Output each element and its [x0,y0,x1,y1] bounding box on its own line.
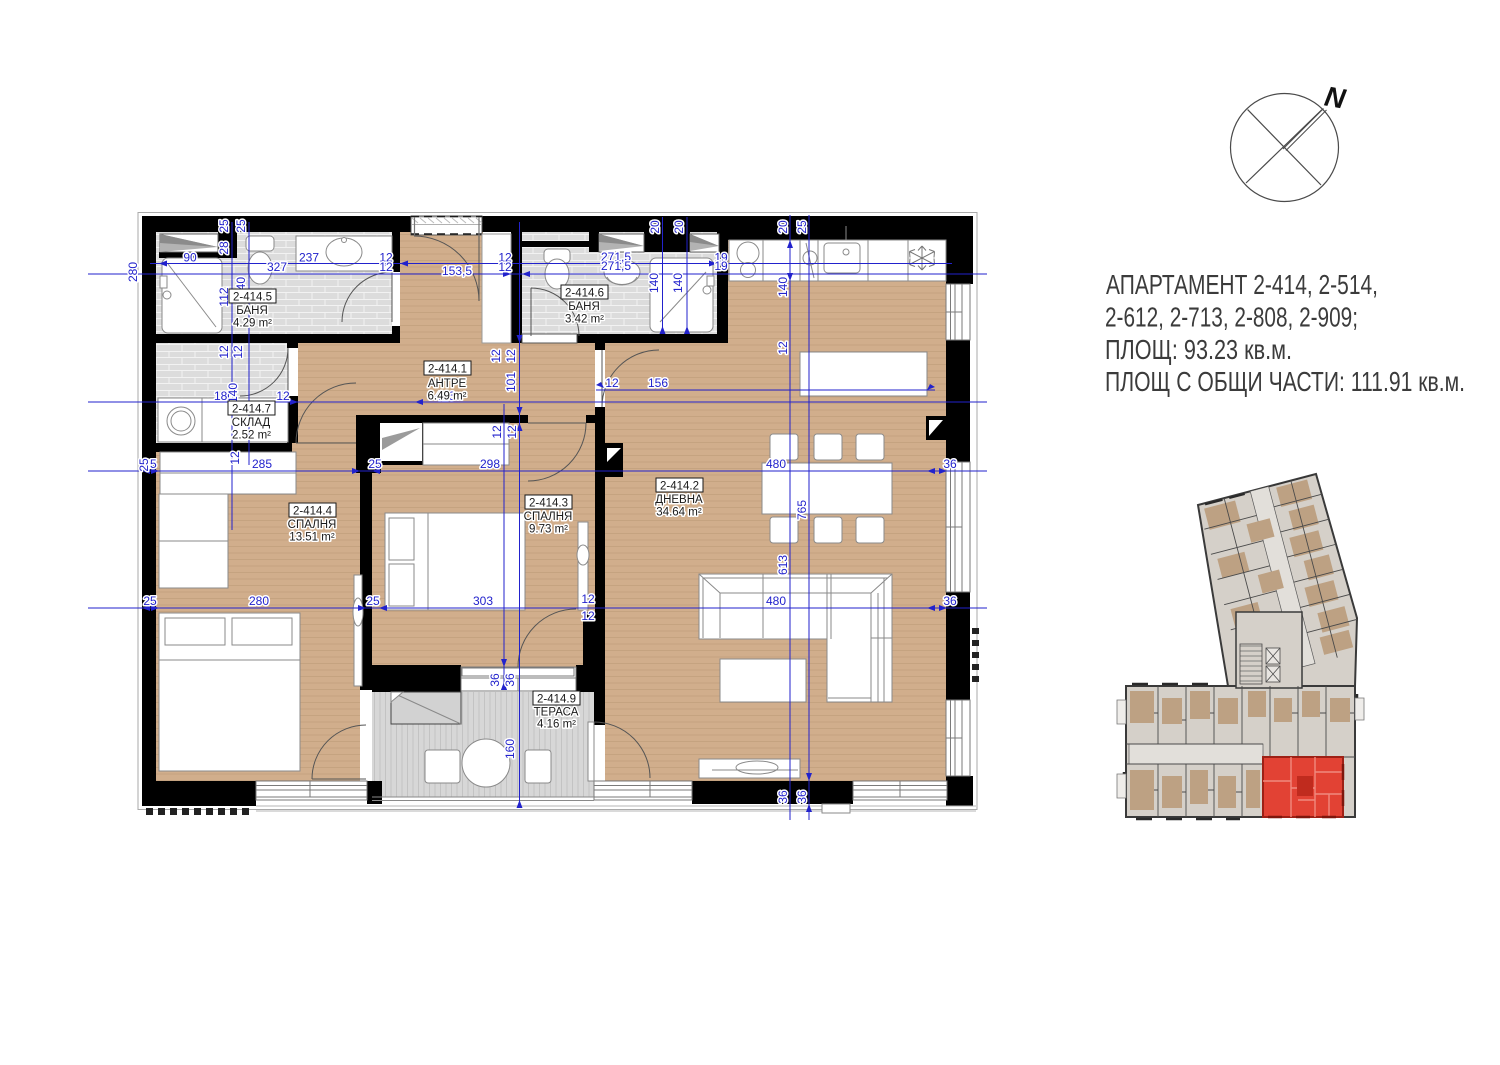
svg-text:ПЛОЩ С ОБЩИ ЧАСТИ: 111.91 кв.м: ПЛОЩ С ОБЩИ ЧАСТИ: 111.91 кв.м. [1105,366,1465,397]
svg-text:327: 327 [267,260,287,274]
svg-text:36: 36 [488,673,502,687]
svg-text:12: 12 [217,345,231,359]
svg-text:2-414.4: 2-414.4 [293,506,333,518]
svg-text:2-414.9: 2-414.9 [537,694,576,706]
svg-text:СПАЛНЯ: СПАЛНЯ [288,519,337,531]
svg-text:12: 12 [228,451,242,465]
svg-text:6.49 m²: 6.49 m² [428,391,467,403]
svg-text:480: 480 [766,457,786,471]
svg-text:140: 140 [226,383,240,403]
svg-text:156: 156 [648,376,668,390]
svg-text:2-414.3: 2-414.3 [529,498,568,510]
svg-text:280: 280 [126,262,140,282]
svg-text:12: 12 [498,260,512,274]
svg-text:БАНЯ: БАНЯ [236,305,268,317]
svg-text:2-612, 2-713, 2-808, 2-909;: 2-612, 2-713, 2-808, 2-909; [1105,302,1358,333]
svg-text:12: 12 [776,341,790,355]
svg-text:СКЛАД: СКЛАД [232,417,271,429]
svg-text:90: 90 [183,251,197,265]
svg-text:280: 280 [249,594,269,608]
svg-text:140: 140 [776,277,790,297]
svg-text:25: 25 [217,219,231,233]
svg-text:ТЕРАСА: ТЕРАСА [534,707,579,719]
svg-text:2-414.1: 2-414.1 [428,364,467,376]
svg-text:12: 12 [504,349,518,363]
svg-text:20: 20 [648,220,662,234]
svg-text:12: 12 [379,260,393,274]
svg-text:12: 12 [581,592,595,606]
svg-text:2-414.6: 2-414.6 [565,288,604,300]
svg-text:4.16 m²: 4.16 m² [537,719,576,731]
svg-text:2-414.5: 2-414.5 [233,292,272,304]
svg-text:613: 613 [776,555,790,575]
svg-text:12: 12 [490,425,504,439]
svg-text:СПАЛНЯ: СПАЛНЯ [524,511,573,523]
svg-text:ПЛОЩ: 93.23 кв.м.: ПЛОЩ: 93.23 кв.м. [1105,334,1292,365]
svg-text:140: 140 [671,273,685,293]
svg-text:36: 36 [776,790,790,804]
svg-text:271,5: 271,5 [601,259,631,273]
svg-text:36: 36 [943,457,957,471]
svg-text:25: 25 [234,219,248,233]
svg-text:3.42 m²: 3.42 m² [565,314,604,326]
svg-text:12: 12 [605,376,619,390]
svg-text:28: 28 [217,241,231,255]
svg-text:285: 285 [252,457,272,471]
svg-text:12: 12 [581,609,595,623]
svg-text:36: 36 [503,673,517,687]
svg-text:153,5: 153,5 [442,264,472,278]
svg-text:36: 36 [795,790,809,804]
svg-text:25: 25 [366,594,380,608]
svg-text:19: 19 [714,259,728,273]
svg-text:ДНЕВНА: ДНЕВНА [655,494,703,506]
svg-text:25: 25 [368,457,382,471]
svg-text:101: 101 [504,372,518,392]
svg-text:237: 237 [299,251,319,265]
svg-text:12: 12 [276,389,290,403]
svg-text:20: 20 [776,220,790,234]
svg-text:298: 298 [480,457,500,471]
svg-text:140: 140 [647,273,661,293]
svg-text:2-414.2: 2-414.2 [660,481,699,493]
svg-text:765: 765 [795,500,809,520]
svg-text:АПАРТАМЕНТ 2-414, 2-514,: АПАРТАМЕНТ 2-414, 2-514, [1106,269,1378,300]
svg-text:160: 160 [503,739,517,759]
svg-text:20: 20 [672,220,686,234]
svg-text:12: 12 [489,349,503,363]
svg-text:12: 12 [231,345,245,359]
svg-text:12: 12 [505,425,519,439]
svg-text:303: 303 [473,594,493,608]
svg-text:25: 25 [143,594,157,608]
svg-text:АНТРЕ: АНТРЕ [428,378,467,390]
svg-text:25: 25 [795,220,809,234]
svg-text:13.51 m²: 13.51 m² [289,532,335,544]
svg-text:4.29 m²: 4.29 m² [233,318,272,330]
svg-text:34.64 m²: 34.64 m² [656,507,702,519]
svg-text:2-414.7: 2-414.7 [232,404,271,416]
svg-text:9.73 m²: 9.73 m² [529,524,568,536]
svg-text:БАНЯ: БАНЯ [568,301,600,313]
svg-text:36: 36 [943,594,957,608]
svg-text:480: 480 [766,594,786,608]
svg-text:2.52 m²: 2.52 m² [232,430,271,442]
svg-text:25: 25 [137,458,151,472]
